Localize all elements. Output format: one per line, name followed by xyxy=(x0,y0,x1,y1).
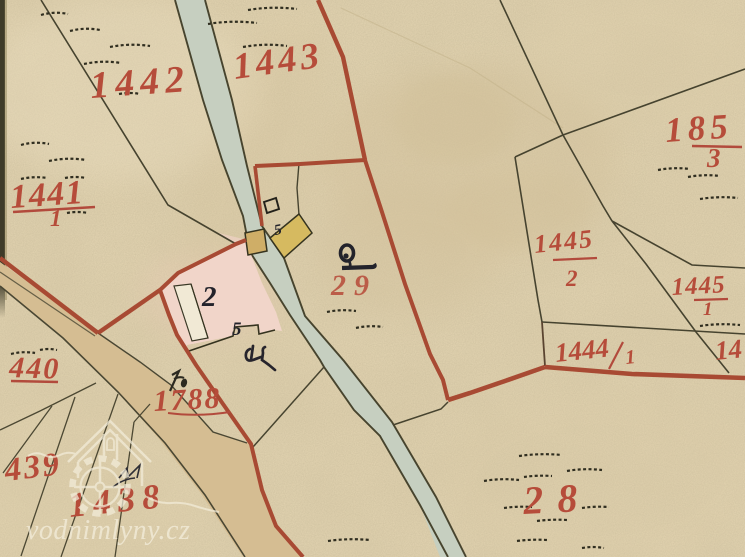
svg-text:1445: 1445 xyxy=(671,271,726,301)
svg-text:1: 1 xyxy=(50,206,62,231)
svg-text:5: 5 xyxy=(232,319,242,340)
svg-text:vodnimlyny.cz: vodnimlyny.cz xyxy=(26,515,190,546)
svg-text:1444: 1444 xyxy=(553,332,610,367)
svg-text:1: 1 xyxy=(703,299,713,320)
svg-text:2: 2 xyxy=(565,266,578,291)
svg-text:1788: 1788 xyxy=(153,381,223,418)
svg-text:28: 28 xyxy=(521,474,592,523)
svg-text:2: 2 xyxy=(201,281,217,313)
svg-text:439: 439 xyxy=(2,446,64,489)
svg-text:14: 14 xyxy=(713,333,743,366)
svg-text:29: 29 xyxy=(330,269,377,302)
svg-text:3: 3 xyxy=(706,143,721,173)
svg-text:185: 185 xyxy=(664,106,734,150)
svg-text:1442: 1442 xyxy=(89,58,192,107)
